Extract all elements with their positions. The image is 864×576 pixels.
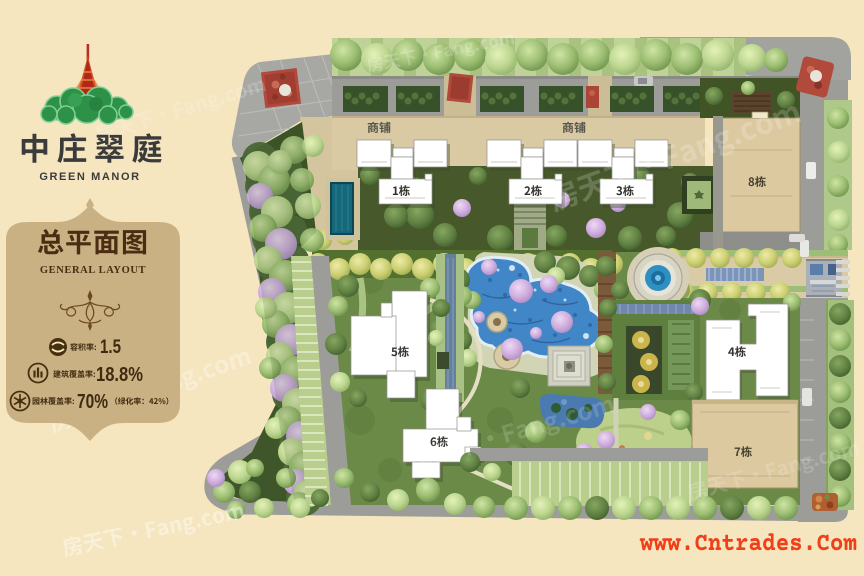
svg-text:GENERAL LAYOUT: GENERAL LAYOUT [40,265,146,276]
svg-text:GREEN MANOR: GREEN MANOR [39,171,140,183]
svg-text:1.5: 1.5 [100,337,121,358]
svg-text:18.8%: 18.8% [96,364,143,386]
svg-text:70%: 70% [77,391,108,413]
